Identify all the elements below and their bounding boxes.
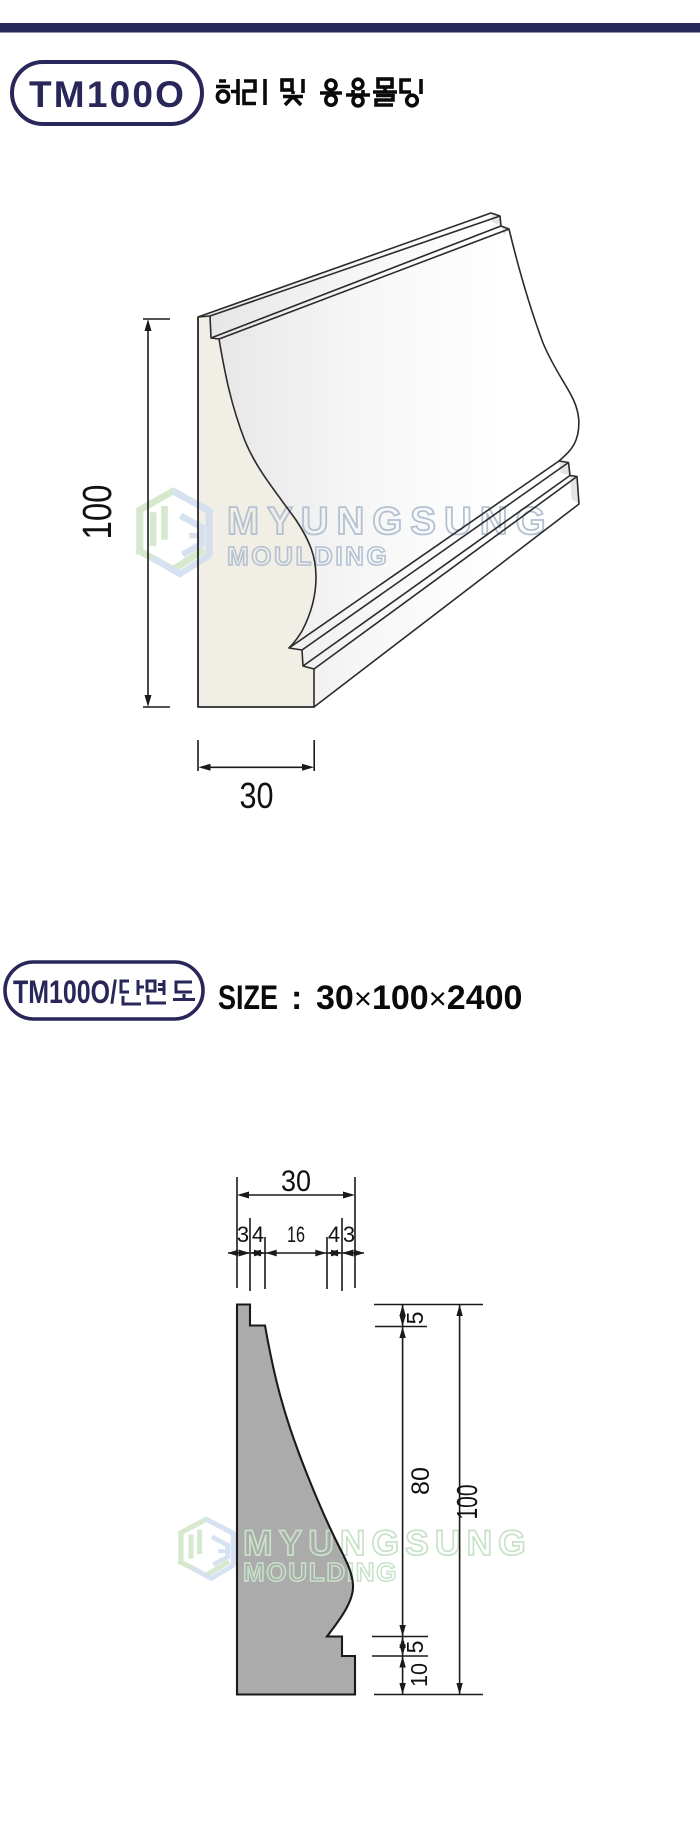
svg-text:4: 4 (328, 1222, 340, 1247)
svg-text:MOULDING: MOULDING (227, 541, 389, 571)
svg-text:100: 100 (452, 1485, 484, 1520)
svg-text::: : (291, 979, 302, 1017)
svg-text:4: 4 (252, 1222, 264, 1247)
svg-text:TM100O: TM100O (29, 74, 186, 115)
svg-text:16: 16 (287, 1222, 305, 1247)
svg-text:3: 3 (343, 1222, 355, 1247)
svg-text:3: 3 (237, 1222, 249, 1247)
svg-text:100: 100 (74, 485, 120, 540)
svg-text:30×100×2400: 30×100×2400 (316, 979, 522, 1017)
svg-text:MOULDING: MOULDING (243, 1557, 398, 1587)
svg-text:30: 30 (281, 1165, 311, 1198)
svg-text:80: 80 (407, 1467, 435, 1495)
svg-text:TM100O/: TM100O/ (13, 974, 117, 1010)
svg-text:30: 30 (240, 775, 274, 816)
svg-text:SIZE: SIZE (218, 979, 278, 1017)
svg-text:10: 10 (406, 1663, 432, 1687)
svg-text:5: 5 (402, 1641, 428, 1654)
svg-text:5: 5 (402, 1312, 428, 1325)
